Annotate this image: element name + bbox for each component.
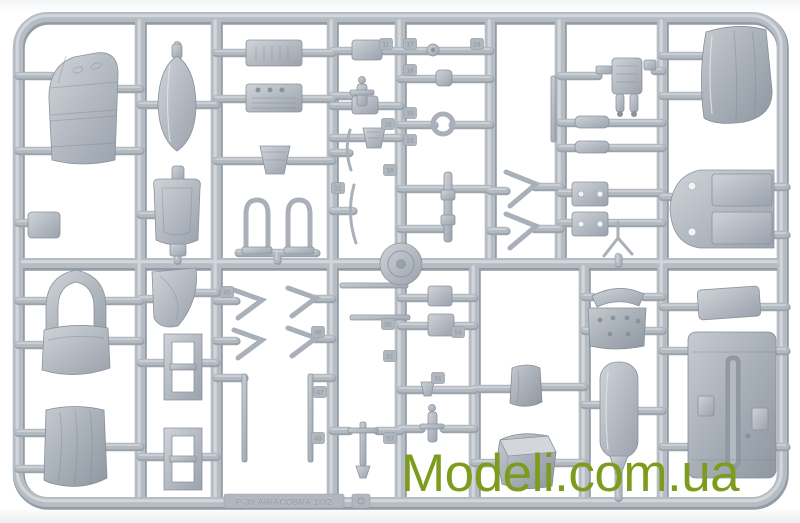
part-hopper	[363, 128, 385, 148]
part-boarding-ladder-1	[164, 334, 202, 400]
part-bracket-plate-2	[572, 212, 608, 236]
part-control-pedestal	[260, 146, 290, 174]
part-number-tag: 45	[223, 289, 231, 296]
part-number-tag: 23	[406, 137, 414, 144]
part-small-hatch	[28, 212, 60, 238]
part-number-tag: 17	[406, 41, 414, 48]
part-number-tag: 19	[406, 110, 414, 117]
part-cowling-panel	[701, 26, 772, 123]
part-number-tag: 16	[386, 167, 394, 174]
part-rod-horizontal-2	[350, 315, 410, 320]
part-number-tag: 11	[383, 41, 390, 48]
part-number-tag: 31	[434, 375, 442, 382]
part-small-block	[436, 70, 452, 86]
part-number-tag: 21	[334, 185, 342, 192]
part-number-tag: 48	[314, 435, 322, 442]
part-foot-stirrup-2	[284, 200, 314, 254]
part-actuator-rod-2	[308, 374, 313, 462]
part-v-brace-3	[288, 288, 316, 316]
part-nose-cowling	[49, 53, 118, 164]
part-number-tag: 18	[406, 67, 414, 74]
part-gear-door-panel	[670, 170, 774, 248]
part-spinner-half	[152, 268, 197, 327]
model-kit-sprue-photo: 11 17 18 19 24 15 23 16 21 45 46 47 48 5…	[0, 0, 800, 523]
molded-kit-text: P-39 AIRACOBRA 1/32	[236, 497, 333, 506]
part-pilot-seat	[154, 166, 201, 256]
part-push-rod	[551, 76, 556, 142]
part-radiator-block-1	[246, 40, 302, 66]
part-small-wheel	[427, 44, 439, 56]
part-number-tag: 24	[473, 41, 481, 48]
sprue-illustration: 11 17 18 19 24 15 23 16 21 45 46 47 48 5…	[0, 0, 800, 523]
part-number-tag: 46	[314, 329, 322, 336]
part-pitot-tee	[348, 422, 378, 478]
part-oleo-strut-1	[575, 116, 609, 128]
part-number-tag: 53	[386, 435, 394, 442]
part-boarding-ladder-2	[164, 428, 202, 490]
part-oleo-strut-2	[575, 141, 609, 153]
part-drop-tank	[158, 44, 196, 151]
part-number-tag: 51	[386, 353, 394, 360]
part-square-fitting-2	[428, 314, 454, 336]
part-radiator-block-2	[246, 84, 302, 112]
part-number-tag: 50	[384, 321, 392, 328]
part-canopy-arch	[42, 270, 110, 375]
part-v-brace-5	[506, 172, 536, 206]
part-bracket-plate-1	[572, 182, 608, 206]
part-glare-shield	[592, 288, 644, 307]
part-number-tag: 47	[316, 389, 324, 396]
part-actuator-rod-1	[242, 374, 247, 462]
part-valve-assembly-2	[420, 405, 444, 443]
part-access-plate	[697, 286, 761, 320]
part-reduction-gearbox	[596, 58, 656, 117]
part-number-tag: 15	[384, 121, 392, 128]
part-link-block-1	[352, 40, 382, 60]
part-wheel-disc	[380, 243, 422, 285]
part-curved-panel-small	[510, 365, 542, 406]
part-number-tag: 54	[454, 329, 462, 336]
part-foot-stirrup-1	[242, 200, 272, 254]
watermark-text: Modeli.com.ua	[401, 444, 740, 503]
part-square-fitting-1	[428, 286, 452, 306]
part-fabric-panel	[44, 407, 107, 487]
part-instrument-panel	[588, 308, 646, 349]
